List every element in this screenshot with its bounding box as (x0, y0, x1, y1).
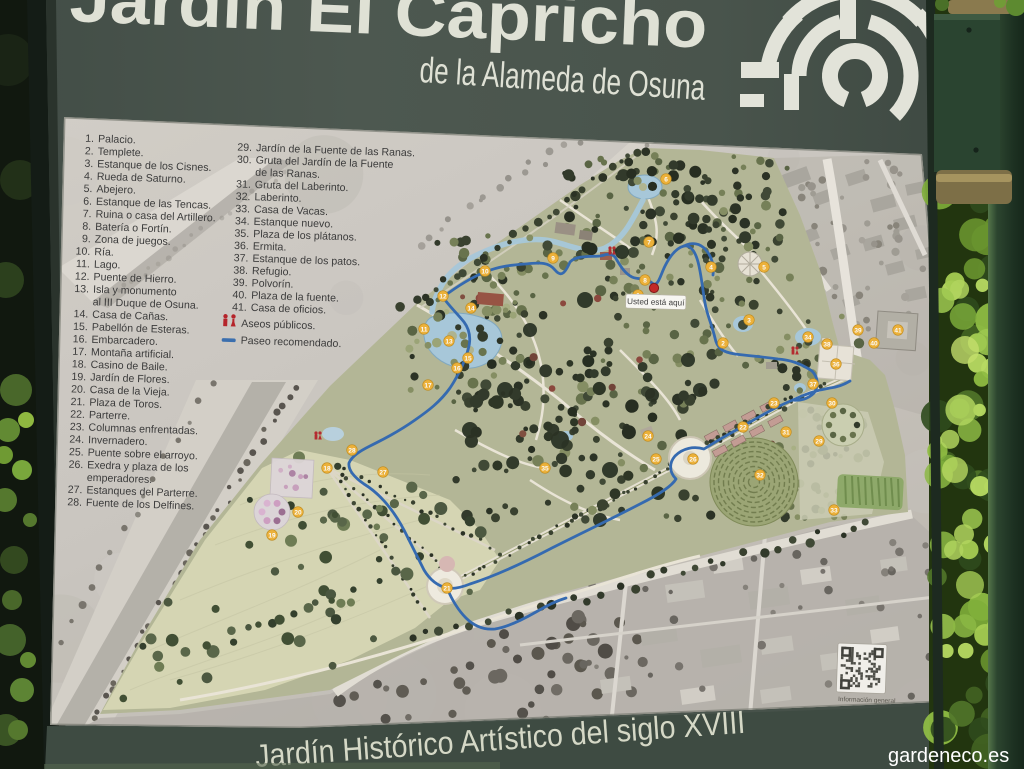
svg-text:41.: 41. (232, 301, 247, 313)
svg-text:38.: 38. (233, 264, 248, 276)
svg-text:14.: 14. (73, 308, 88, 320)
svg-text:Aseos públicos.: Aseos públicos. (241, 318, 316, 332)
svg-text:Ermita.: Ermita. (253, 240, 287, 253)
svg-text:Lago.: Lago. (94, 259, 121, 272)
svg-text:34.: 34. (235, 215, 250, 227)
svg-text:Ría.: Ría. (94, 246, 114, 259)
svg-text:28.: 28. (67, 496, 82, 508)
svg-text:31.: 31. (236, 178, 251, 190)
svg-text:Templete.: Templete. (97, 146, 143, 160)
svg-text:26.: 26. (68, 459, 83, 471)
svg-text:33.: 33. (235, 203, 250, 215)
svg-text:23.: 23. (70, 421, 85, 433)
svg-text:16.: 16. (73, 333, 88, 345)
svg-text:12.: 12. (75, 271, 90, 283)
svg-text:40.: 40. (232, 289, 247, 301)
svg-text:2.: 2. (85, 145, 94, 157)
svg-text:Parterre.: Parterre. (89, 409, 131, 422)
svg-text:4.: 4. (84, 170, 93, 182)
svg-text:Abejero.: Abejero. (96, 183, 136, 196)
svg-text:37.: 37. (234, 252, 249, 264)
svg-text:Invernadero.: Invernadero. (88, 434, 148, 448)
svg-text:15.: 15. (73, 321, 88, 333)
svg-text:Casa de oficios.: Casa de oficios. (251, 302, 327, 316)
svg-text:21.: 21. (70, 396, 85, 408)
svg-text:22.: 22. (70, 408, 85, 420)
svg-text:24.: 24. (69, 434, 84, 446)
svg-text:29.: 29. (237, 142, 252, 154)
svg-text:27.: 27. (68, 484, 83, 496)
svg-text:7.: 7. (83, 208, 92, 220)
svg-text:3.: 3. (84, 158, 93, 170)
svg-text:Polvorín.: Polvorín. (251, 277, 293, 290)
svg-text:13.: 13. (74, 283, 89, 295)
svg-text:6.: 6. (83, 195, 92, 207)
svg-text:1.: 1. (85, 133, 94, 145)
svg-text:25.: 25. (69, 446, 84, 458)
svg-text:19.: 19. (71, 371, 86, 383)
svg-text:10.: 10. (75, 245, 90, 257)
svg-text:Palacio.: Palacio. (98, 133, 136, 146)
svg-text:17.: 17. (72, 346, 87, 358)
svg-text:9.: 9. (82, 233, 91, 245)
svg-text:5.: 5. (83, 183, 92, 195)
svg-text:8.: 8. (82, 221, 91, 233)
svg-text:36.: 36. (234, 240, 249, 252)
svg-text:Refugio.: Refugio. (252, 265, 292, 278)
svg-text:gardeneco.es: gardeneco.es (888, 745, 1009, 767)
svg-text:39.: 39. (233, 277, 248, 289)
svg-text:30.: 30. (237, 154, 252, 166)
svg-text:Laberinto.: Laberinto. (254, 191, 301, 205)
svg-text:32.: 32. (236, 191, 251, 203)
svg-text:18.: 18. (72, 358, 87, 370)
svg-text:11.: 11. (76, 258, 90, 270)
svg-text:20.: 20. (71, 383, 86, 395)
svg-text:35.: 35. (234, 228, 249, 240)
